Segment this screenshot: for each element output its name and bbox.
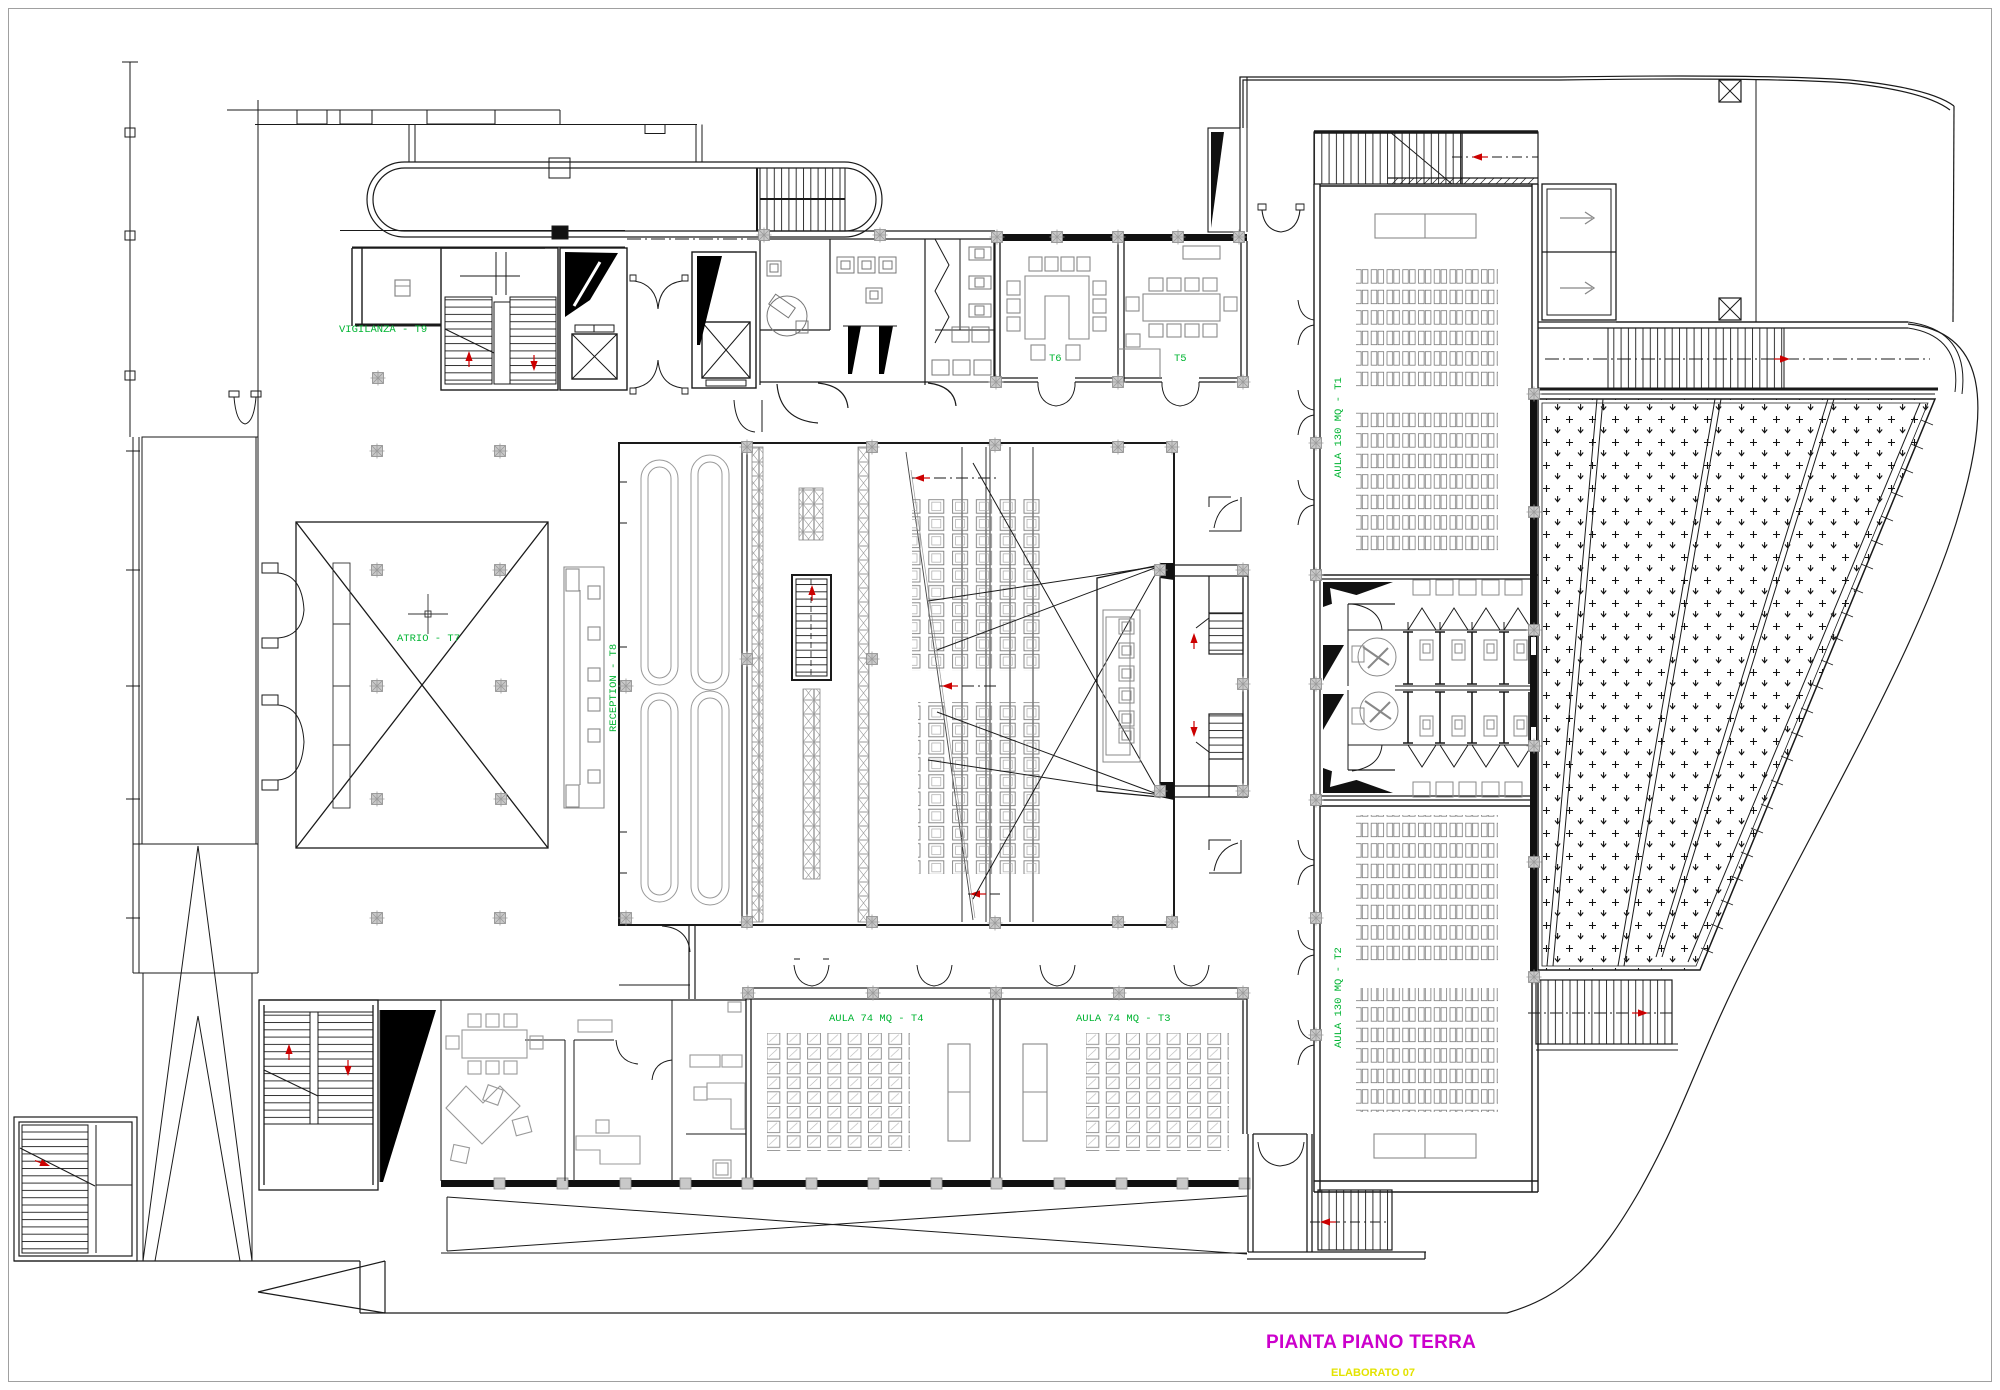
svg-text:T5: T5: [1174, 353, 1187, 365]
svg-text:AULA 74 MQ - T4: AULA 74 MQ - T4: [829, 1013, 924, 1025]
svg-text:AULA 130 MQ - T2: AULA 130 MQ - T2: [1333, 947, 1345, 1048]
svg-text:AULA 74 MQ - T3: AULA 74 MQ - T3: [1076, 1013, 1171, 1025]
svg-text:ELABORATO 07: ELABORATO 07: [1331, 1367, 1415, 1379]
svg-text:ATRIO - T7: ATRIO - T7: [397, 633, 460, 645]
svg-text:VIGILANZA - T9: VIGILANZA - T9: [339, 324, 427, 336]
svg-text:PIANTA PIANO TERRA: PIANTA PIANO TERRA: [1266, 1332, 1476, 1353]
svg-text:AULA 130 MQ - T1: AULA 130 MQ - T1: [1333, 377, 1345, 478]
svg-text:T6: T6: [1049, 353, 1062, 365]
svg-text:RECEPTION - T8: RECEPTION - T8: [608, 644, 620, 732]
